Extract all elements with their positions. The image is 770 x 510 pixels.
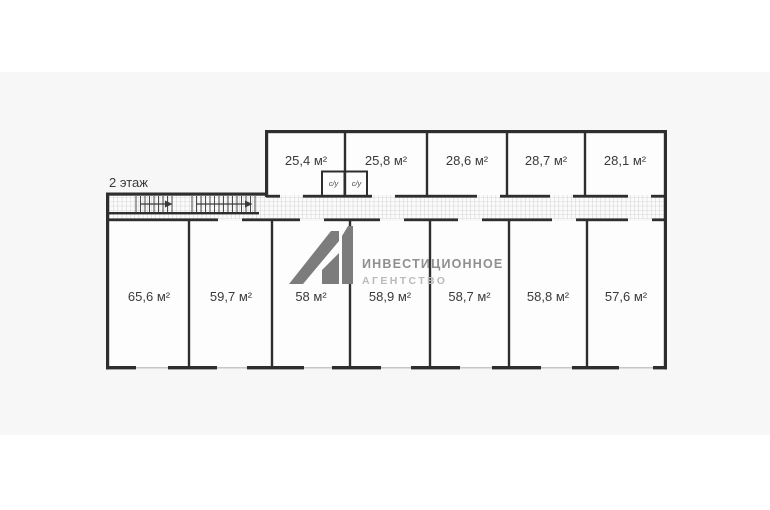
room-area-label: 58,8 м² [509, 284, 587, 308]
room-area-label: 65,6 м² [108, 284, 190, 308]
room-area-label: 25,8 м² [345, 148, 427, 172]
watermark-agency-name: ИНВЕСТИЦИОННОЕ [362, 258, 503, 271]
room-area-label: 28,6 м² [427, 148, 507, 172]
wc-label: с/у [323, 173, 344, 194]
room-area-label: 58,7 м² [430, 284, 509, 308]
room-area-label: 57,6 м² [587, 284, 665, 308]
watermark-agency-type: АГЕНТСТВО [362, 276, 447, 287]
room-area-label: 28,1 м² [585, 148, 665, 172]
watermark-logo [289, 226, 353, 292]
wc-label: с/у [346, 173, 367, 194]
room-area-label: 59,7 м² [190, 284, 272, 308]
room-area-label: 58,9 м² [350, 284, 430, 308]
floor-plan-svg [0, 0, 770, 510]
floor-label: 2 этаж [109, 176, 148, 189]
room-area-label: 25,4 м² [267, 148, 345, 172]
room-area-label: 28,7 м² [507, 148, 585, 172]
